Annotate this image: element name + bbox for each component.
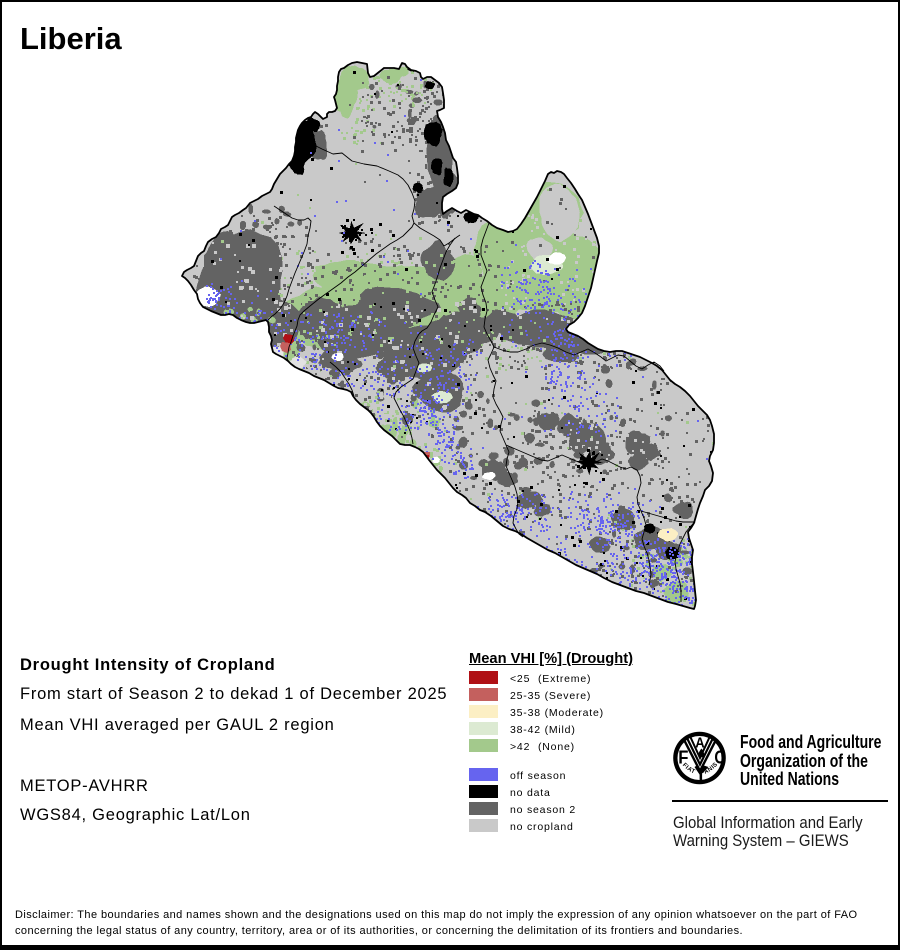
svg-text:A: A: [695, 736, 705, 752]
